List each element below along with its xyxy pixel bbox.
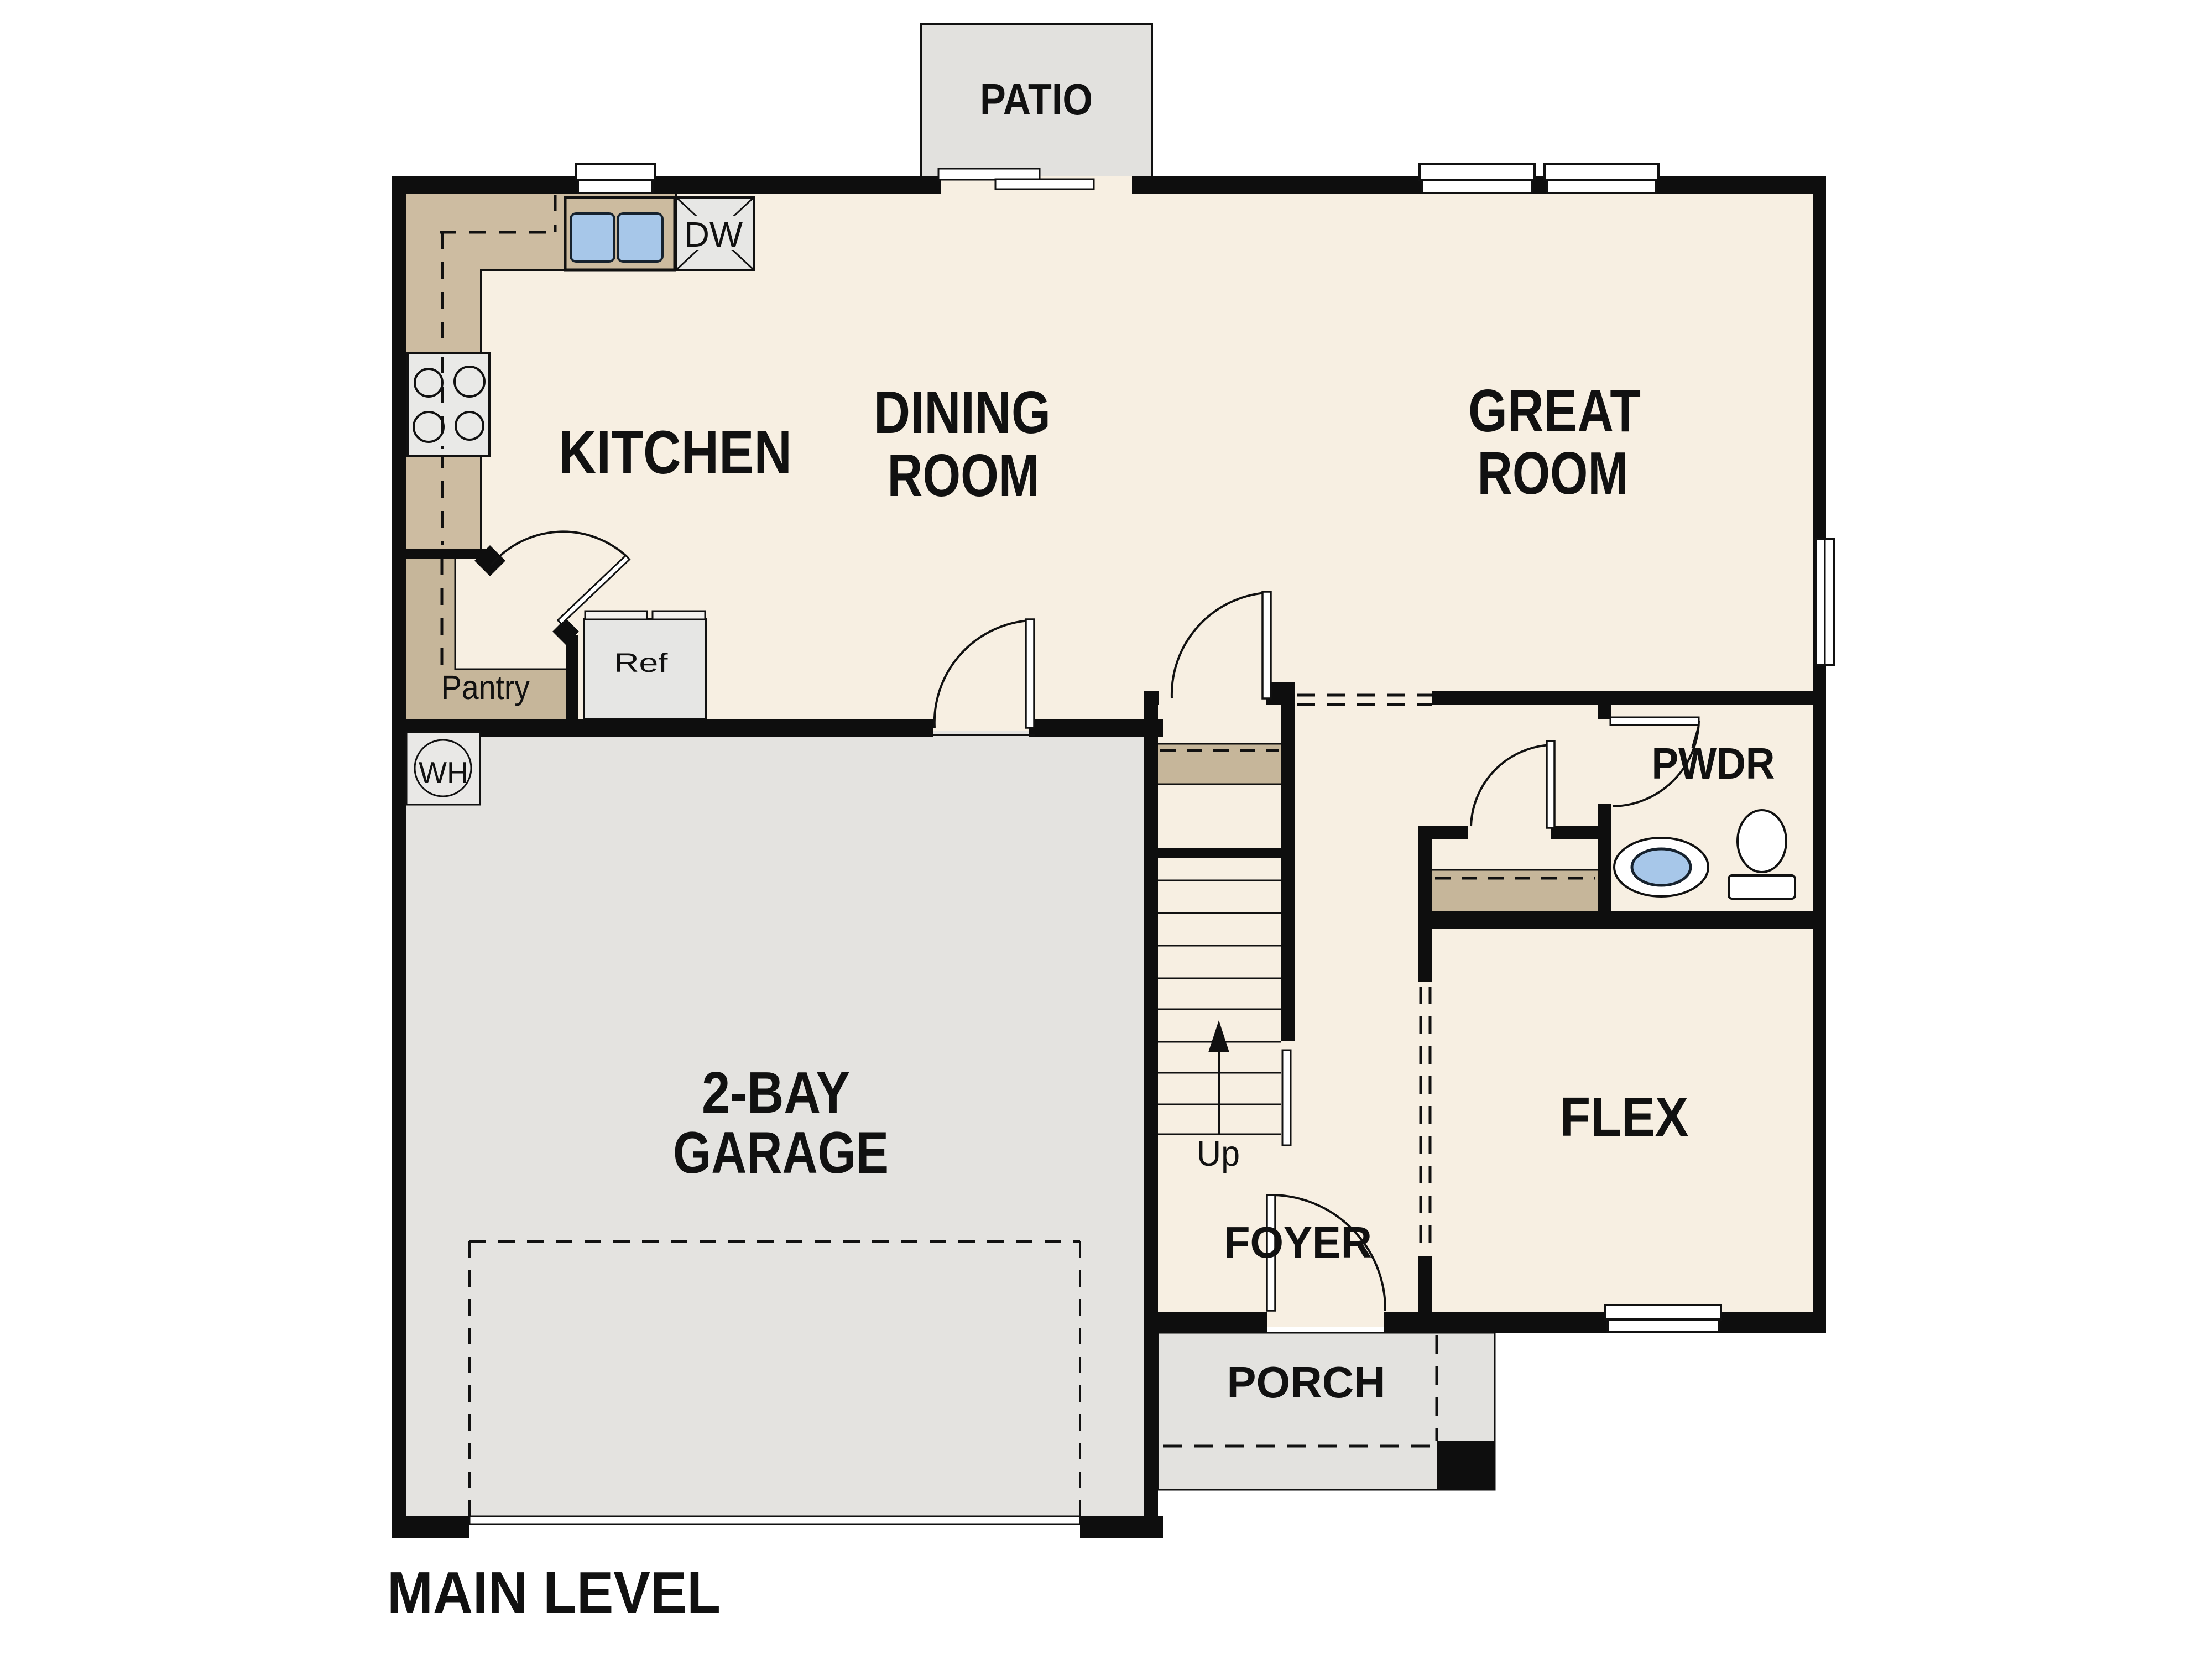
svg-text:DINING: DINING	[874, 379, 1051, 446]
svg-text:PORCH: PORCH	[1227, 1358, 1386, 1407]
svg-text:Up: Up	[1197, 1133, 1240, 1173]
svg-text:GREAT: GREAT	[1468, 377, 1641, 445]
svg-text:ROOM: ROOM	[888, 442, 1040, 509]
svg-text:FOYER: FOYER	[1224, 1218, 1372, 1267]
svg-text:ROOM: ROOM	[1478, 440, 1629, 507]
svg-text:GARAGE: GARAGE	[673, 1119, 889, 1186]
svg-text:FLEX: FLEX	[1560, 1086, 1689, 1148]
svg-text:KITCHEN: KITCHEN	[559, 419, 792, 487]
svg-text:PWDR: PWDR	[1652, 739, 1775, 788]
svg-text:MAIN LEVEL: MAIN LEVEL	[387, 1560, 721, 1625]
svg-text:Pantry: Pantry	[441, 669, 530, 706]
svg-text:2-BAY: 2-BAY	[702, 1060, 850, 1125]
svg-text:WH: WH	[419, 755, 468, 790]
svg-text:PATIO: PATIO	[980, 75, 1093, 124]
svg-text:Ref: Ref	[614, 649, 669, 678]
svg-text:DW: DW	[684, 215, 743, 254]
